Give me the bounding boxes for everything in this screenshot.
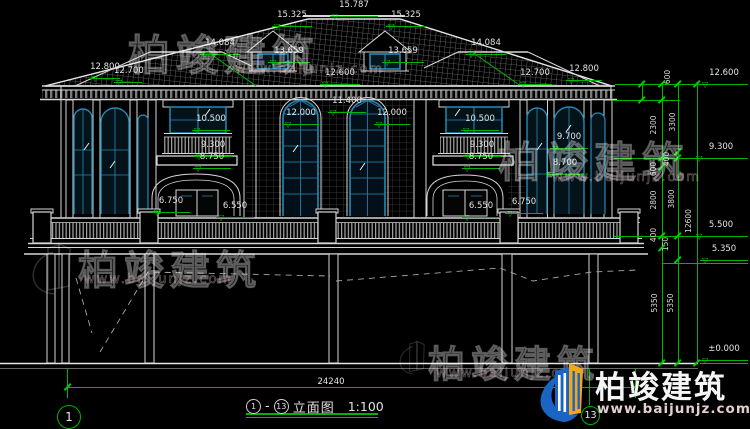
level-dormer-r: 13.659▽: [382, 47, 424, 63]
vdim-400-low: 400: [650, 218, 658, 252]
title-dash: -: [265, 399, 270, 414]
brand-logo: 柏竣建筑 www.baijunjz.com: [535, 354, 750, 429]
axis-bubble-1: 1: [57, 405, 81, 429]
level-f2-floor-l: 8.750▽: [193, 153, 231, 169]
level-f2-floor-r: 8.750▽: [462, 153, 500, 169]
vdim-5350-a: 5350: [651, 286, 659, 320]
level-eave-hi-r: 12.800▽: [566, 65, 602, 81]
watermark-logo-mark-bottom: [390, 336, 436, 378]
dim-chain-line: [678, 84, 679, 363]
level-f2-window-l: 10.500▽: [192, 115, 230, 131]
level-window-top-r: 12.000▽: [374, 109, 410, 125]
title-underline-2: [246, 417, 378, 418]
left-tower: [61, 86, 156, 218]
watermark-site-right: www.baijunjz.com: [552, 170, 701, 185]
title-scale: 1:100: [348, 399, 384, 414]
title-text: 立面图: [293, 397, 335, 416]
level-terrace-rail-r: 6.550▽: [462, 202, 500, 218]
dim-chain-line: [662, 84, 663, 363]
level-f2-rail-chain: 9.300▽: [694, 143, 748, 159]
level-terrace-post-l: 6.750▽: [152, 197, 190, 213]
watermark-brand-left: 柏竣建筑: [78, 238, 262, 296]
dim-ext-line: [612, 100, 680, 101]
level-triangle-icon: ▽: [332, 13, 338, 21]
overall-dim-ext-l: [67, 368, 68, 398]
level-terrace-rail-l: 6.550▽: [216, 202, 254, 218]
vdim-600-top: 600: [664, 60, 672, 94]
level-f2-window-r: 10.500▽: [461, 115, 499, 131]
overall-width-dim: 24240: [306, 377, 356, 387]
vdim-12600: 12600: [685, 204, 693, 238]
level-eave-lo-r: 12.700▽: [518, 69, 552, 85]
brand-logo-icon: [535, 356, 593, 428]
title-axis-start: 1: [246, 399, 261, 414]
drawing-title: 1 - 13 立面图 1:100: [246, 397, 384, 416]
level-terrace-post-r: 6.750▽: [505, 198, 543, 214]
watermark-site-left: www.baijunjz.com: [84, 272, 233, 287]
level-wing-ridge-r: 14.084▽: [466, 39, 506, 55]
level-window-top-l: 12.000▽: [283, 109, 319, 125]
watermark-site-top: www.baijunjz.com: [235, 62, 384, 77]
level-eave-base-chain: 12.600▽: [700, 69, 748, 85]
level-arch-spring: 11.400▽: [328, 97, 366, 113]
level-deck-lo-chain: 5.350▽: [700, 245, 748, 261]
cad-elevation-canvas: 15.787▽ 15.325▽ 15.325▽ 13.659▽ 13.659▽ …: [0, 0, 750, 429]
vdim-5350-b: 5350: [667, 286, 675, 320]
title-axis-end: 13: [274, 399, 289, 414]
level-ridge: 15.787▽: [330, 1, 378, 17]
level-deck-chain: 5.500▽: [694, 221, 748, 237]
brand-logo-site: www.baijunjz.com: [597, 401, 750, 417]
level-ridge-end-r: 15.325▽: [386, 11, 426, 27]
watermark-logo-mark-left: [26, 236, 80, 300]
